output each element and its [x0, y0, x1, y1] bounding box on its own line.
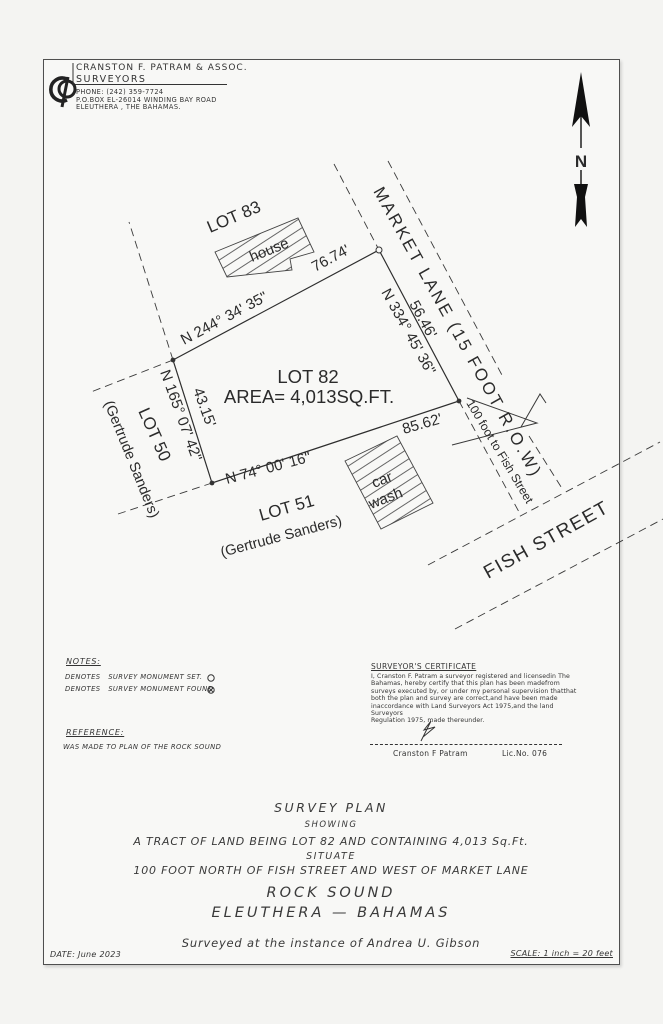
lot51-owner-label: (Gertrude Sanders) [219, 513, 344, 561]
lot51-label: LOT 51 [257, 491, 316, 525]
certificate-title: SURVEYOR'S CERTIFICATE [371, 662, 576, 671]
monument-found-icon [171, 358, 176, 363]
lot82-label: LOT 82 [277, 366, 338, 387]
south-distance-label: 85.62' [400, 410, 444, 438]
lot50-label: LOT 50 [134, 405, 174, 464]
legend-monument-set-icon [208, 675, 214, 681]
signature-line [370, 744, 562, 745]
certificate-line: surveys executed by, or under my persona… [371, 688, 576, 695]
title-settlement: ROCK SOUND [43, 885, 619, 901]
notes-monument-found: DENOTES SURVEY MONUMENT FOUND. [65, 685, 216, 693]
south-line-extension-west [118, 483, 212, 514]
monument-set-icon [376, 247, 382, 253]
title-tract-description: A TRACT OF LAND BEING LOT 82 AND CONTAIN… [43, 835, 619, 848]
notes-monument-set: DENOTES SURVEY MONUMENT SET. [65, 673, 202, 681]
south-bearing-label: N 74° 00' 16" [224, 449, 313, 488]
title-island-country: ELEUTHERA — BAHAMAS [43, 905, 619, 921]
plan-date: DATE: June 2023 [50, 950, 121, 959]
reference-title: REFERENCE: [66, 728, 124, 737]
monument-found-icon [457, 399, 462, 404]
plan-scale: SCALE: 1 inch = 20 feet [511, 949, 614, 958]
firm-name: CRANSTON F. PATRAM & ASSOC. [76, 63, 248, 73]
title-situate: SITUATE [43, 851, 619, 862]
reference-body: WAS MADE TO PLAN OF THE ROCK SOUND [63, 743, 221, 751]
north-distance-label: 76.74' [309, 241, 353, 275]
lot82-area-label: AREA= 4,013SQ.FT. [224, 386, 394, 407]
certificate-line: I, Cranston F. Patram a surveyor registe… [371, 673, 576, 680]
fish-street-label: FISH STREET [480, 497, 613, 583]
north-label: N [575, 152, 587, 171]
firm-address-line2: ELEUTHERA , THE BAHAMAS. [76, 103, 181, 111]
title-location: 100 FOOT NORTH OF FISH STREET AND WEST O… [43, 864, 619, 877]
company-logo-icon [51, 63, 75, 107]
survey-plan-page: { "header": { "logo": "CP", "firm_name":… [0, 0, 663, 1024]
west-distance-label: 43.15' [189, 386, 219, 430]
title-client: Surveyed at the instance of Andrea U. Gi… [43, 936, 619, 950]
monument-found-icon [210, 481, 215, 486]
header-rule [75, 84, 227, 85]
certificate-line: Surveyors [371, 710, 576, 717]
notes-title: NOTES: [66, 657, 101, 666]
surveyor-name: Cranston F Patram [393, 749, 468, 758]
surveyor-license: Lic.No. 076 [502, 749, 547, 758]
market-lane-west-edge-upper [334, 164, 379, 250]
west-line-extension-north [129, 222, 173, 360]
title-survey-plan: SURVEY PLAN [43, 800, 619, 815]
north-arrow-icon [572, 72, 590, 227]
title-block: SURVEY PLAN SHOWING A TRACT OF LAND BEIN… [43, 800, 619, 950]
lot83-label: LOT 83 [204, 197, 263, 237]
certificate-line: inaccordance with Land Surveyors Act 197… [371, 703, 576, 710]
surveyors-certificate: SURVEYOR'S CERTIFICATE I, Cranston F. Pa… [371, 662, 576, 725]
certificate-line: Regulation 1975, made thereunder. [371, 717, 576, 724]
title-showing: SHOWING [43, 820, 619, 830]
north-bearing-label: N 244° 34' 35" [178, 288, 271, 348]
market-lane-east-edge-upper [388, 161, 503, 377]
certificate-line: both the plan and survey are correct,and… [371, 695, 576, 702]
certificate-line: Bahamas, hereby certify that this plan h… [371, 680, 576, 687]
